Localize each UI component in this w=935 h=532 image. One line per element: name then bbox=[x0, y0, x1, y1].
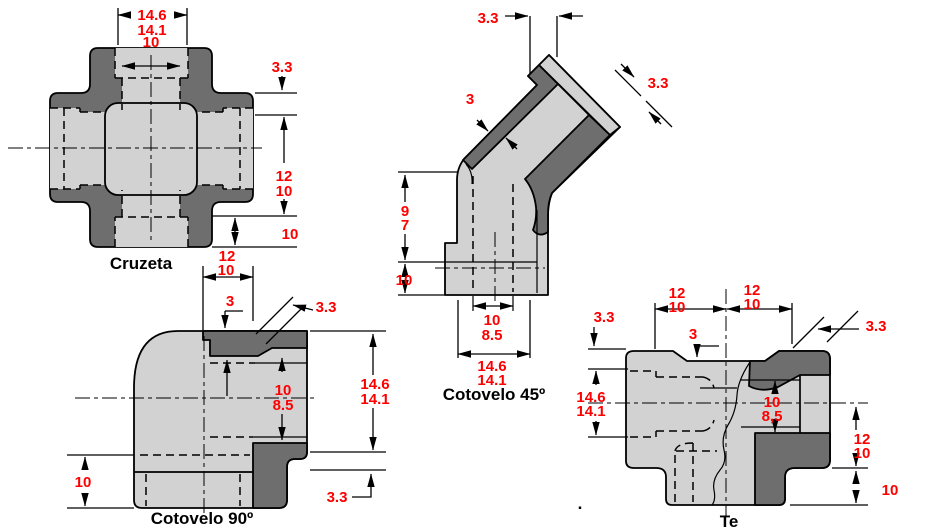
dim-te-left-dia-min: 14.1 bbox=[576, 403, 605, 420]
te-bottom-wall bbox=[755, 433, 830, 505]
dim-c45-body-height-min: 7 bbox=[401, 217, 409, 234]
dim-c45-socket-depth: 10 bbox=[396, 272, 413, 289]
dim-cruzeta-bore-dia: 10 bbox=[143, 34, 160, 51]
cotovelo90-bottom-wall bbox=[253, 443, 307, 508]
dim-cruzeta-end-wall: 3.3 bbox=[272, 59, 293, 76]
dim-te-chamfer: 3.3 bbox=[866, 318, 887, 335]
dim-c90-bottom-chamfer: 3.3 bbox=[327, 489, 348, 506]
dim-c45-wall-thickness: 3 bbox=[466, 91, 474, 108]
dim-c90-top-socket-min: 10 bbox=[218, 262, 235, 279]
cruzeta-view: 14.6 14.1 10 3.3 12 10 10 Cruzeta bbox=[8, 7, 298, 273]
dim-te-bore-min: 8,5 bbox=[762, 408, 783, 425]
dim-c45-bore-min: 8.5 bbox=[482, 327, 503, 344]
dim-c45-flange-wall: 3.3 bbox=[648, 75, 669, 92]
dim-c90-top-chamfer: 3.3 bbox=[316, 299, 337, 316]
dim-c45-end-wall: 3.3 bbox=[478, 10, 499, 27]
dim-te-right-depth-min: 10 bbox=[854, 445, 871, 462]
technical-drawing-page: 14.6 14.1 10 3.3 12 10 10 Cruzeta bbox=[0, 0, 935, 532]
dim-cruzeta-thread-depth: 10 bbox=[282, 226, 299, 243]
dim-te-left-wall: 3.3 bbox=[594, 309, 615, 326]
label-cruzeta: Cruzeta bbox=[110, 254, 173, 273]
dim-c90-top-wall: 3 bbox=[226, 293, 234, 310]
dim-te-left-socket-min: 10 bbox=[669, 299, 686, 316]
dim-cruzeta-socket-depth-min: 10 bbox=[276, 183, 293, 200]
dim-c90-bore-min: 8.5 bbox=[273, 397, 294, 414]
dim-te-center-wall: 3 bbox=[689, 326, 697, 343]
dim-te-right-socket-min: 10 bbox=[744, 296, 761, 313]
stray-dot: . bbox=[578, 494, 583, 513]
label-te: Te bbox=[720, 512, 739, 531]
dim-te-thread-depth: 10 bbox=[882, 482, 899, 499]
label-cotovelo90: Cotovelo 90º bbox=[151, 509, 254, 528]
cotovelo45-view: 3.3 3.3 3 9 7 10 10 8.5 14.6 14.1 Cotove… bbox=[396, 10, 672, 404]
dim-c90-left-socket-depth: 10 bbox=[75, 474, 92, 491]
cotovelo90-view: 12 10 3 3.3 10 8.5 14.6 14.1 3.3 10 Coto… bbox=[67, 248, 390, 528]
te-view: 3.3 12 10 12 10 3 3.3 14.6 14.1 10 8,5 1… bbox=[576, 282, 898, 531]
dim-c90-height-min: 14.1 bbox=[360, 391, 389, 408]
label-cotovelo45: Cotovelo 45º bbox=[443, 385, 546, 404]
fittings-drawing-canvas: 14.6 14.1 10 3.3 12 10 10 Cruzeta bbox=[0, 0, 935, 532]
